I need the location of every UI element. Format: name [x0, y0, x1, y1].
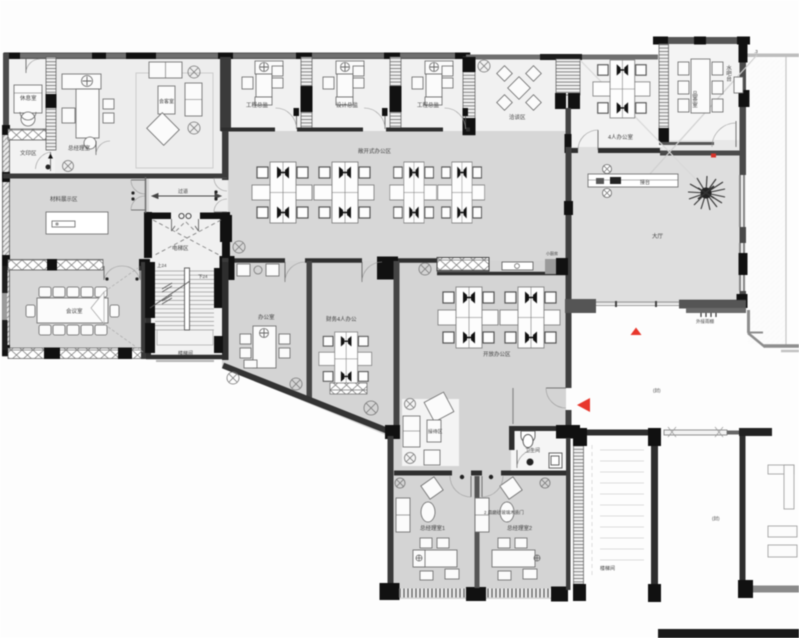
svg-text:工程总监: 工程总监 [246, 101, 269, 109]
svg-text:4人办公室: 4人办公室 [608, 133, 634, 141]
svg-text:小厨房: 小厨房 [546, 250, 558, 256]
svg-text:卫生间: 卫生间 [525, 447, 540, 454]
svg-text:水吧台: 水吧台 [725, 64, 732, 83]
svg-text:总经理室2: 总经理室2 [507, 524, 532, 532]
svg-text:会议室: 会议室 [66, 307, 83, 315]
svg-text:(封): (封) [653, 387, 661, 393]
svg-text:楼梯间: 楼梯间 [178, 350, 193, 357]
svg-text:设计总监: 设计总监 [336, 101, 359, 109]
svg-text:洽谈区: 洽谈区 [509, 113, 526, 121]
svg-text:工程总监: 工程总监 [417, 101, 440, 109]
svg-text:(封): (封) [712, 515, 720, 521]
svg-text:总经理室: 总经理室 [68, 144, 91, 152]
svg-text:.3: .3 [754, 49, 758, 54]
svg-text:过道: 过道 [178, 188, 188, 195]
svg-text:会客室: 会客室 [159, 98, 174, 105]
svg-text:总经理室1: 总经理室1 [420, 524, 445, 532]
svg-text:开放办公区: 开放办公区 [483, 350, 511, 358]
svg-text:材料展示区: 材料展示区 [50, 195, 78, 203]
svg-text:大厅: 大厅 [652, 232, 664, 240]
svg-text:外接雨棚: 外接雨棚 [696, 318, 714, 325]
svg-text:文印区: 文印区 [20, 149, 37, 157]
svg-text:2 扇磨砂玻璃木质门: 2 扇磨砂玻璃木质门 [484, 509, 524, 516]
svg-text:接待区: 接待区 [428, 428, 443, 435]
svg-text:敞开式办公区: 敞开式办公区 [358, 147, 392, 155]
svg-text:接台: 接台 [640, 179, 650, 186]
svg-text:电梯区: 电梯区 [172, 244, 189, 252]
svg-text:品茶室: 品茶室 [691, 91, 698, 108]
svg-text:财务4人办公: 财务4人办公 [326, 315, 357, 323]
svg-text:上24: 上24 [157, 262, 167, 268]
svg-text:休息室: 休息室 [20, 94, 37, 102]
svg-text:办公室: 办公室 [258, 313, 275, 321]
svg-text:楼梯间: 楼梯间 [600, 565, 615, 572]
